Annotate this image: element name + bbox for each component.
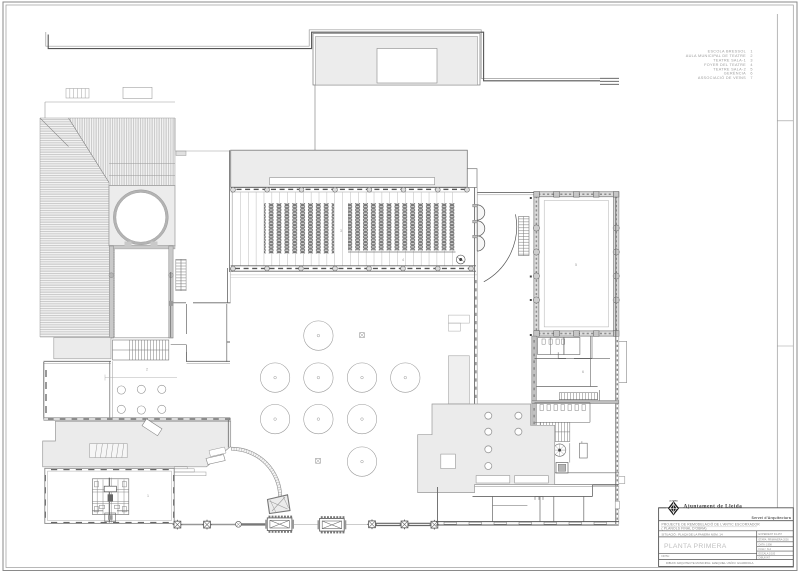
svg-text:FOYER DEL TEATRE: FOYER DEL TEATRE	[704, 63, 746, 67]
svg-text:Ajuntament de Lleida: Ajuntament de Lleida	[684, 504, 743, 510]
svg-text:EXPEDIENT 94-257: EXPEDIENT 94-257	[759, 532, 783, 536]
svg-text:ESCALA 1/100: ESCALA 1/100	[759, 552, 776, 555]
svg-text:FULLº: N-4: FULLº: N-4	[759, 547, 772, 551]
svg-text:DIBUIXAT: DIBUIXAT	[759, 557, 771, 560]
svg-text:3: 3	[340, 229, 342, 233]
svg-text:Servei d'Arquitectura: Servei d'Arquitectura	[752, 516, 791, 520]
svg-text:TEATRE SALA-1: TEATRE SALA-1	[713, 58, 746, 62]
svg-text:7: 7	[750, 76, 752, 80]
svg-text:NOTA :: NOTA :	[662, 554, 671, 558]
svg-text:5: 5	[750, 67, 752, 71]
svg-text:ETAPA: PRIMAVERA-2000: ETAPA: PRIMAVERA-2000	[759, 539, 790, 542]
svg-text:5: 5	[575, 263, 577, 267]
svg-text:PLANTA PRIMERA: PLANTA PRIMERA	[664, 543, 727, 550]
svg-text:PROJECTE DE REMODELACIÓ DE: PROJECTE DE REMODELACIÓ DE L'ANTIC ESCOR…	[662, 521, 761, 526]
svg-text:4: 4	[402, 258, 404, 262]
svg-text:1: 1	[750, 50, 752, 54]
svg-text:2: 2	[750, 54, 752, 58]
svg-text:DATA: 1998: DATA: 1998	[759, 543, 773, 546]
svg-text:6: 6	[750, 72, 752, 76]
svg-text:6: 6	[582, 370, 584, 374]
svg-text:1: 1	[147, 494, 149, 498]
svg-text:GERÈNCIA: GERÈNCIA	[724, 71, 746, 76]
svg-text:DIBUIX/ ARQUITECTE MUNICIPAL:: DIBUIX/ ARQUITECTE MUNICIPAL: EZEQUIEL U…	[666, 560, 754, 565]
svg-text:ASSOCIACIÓ DE VEÏNS: ASSOCIACIÓ DE VEÏNS	[698, 75, 746, 80]
svg-text:AULA MUNICIPAL DE TEATRE: AULA MUNICIPAL DE TEATRE	[686, 54, 746, 58]
svg-text:2: 2	[146, 368, 148, 372]
svg-text:3: 3	[750, 58, 752, 62]
svg-text:4: 4	[750, 63, 752, 67]
svg-text:( PLANOLS FINAL D'OBRA): ( PLANOLS FINAL D'OBRA)	[662, 527, 707, 531]
svg-text:TEATRE SALA-2: TEATRE SALA-2	[713, 67, 746, 71]
svg-text:SITUACIÓ : PLAÇA DE LA PAN: SITUACIÓ : PLAÇA DE LA PANERA NÚM. 14	[662, 531, 723, 536]
svg-text:ESCOLA BRESSOL: ESCOLA BRESSOL	[708, 50, 746, 54]
